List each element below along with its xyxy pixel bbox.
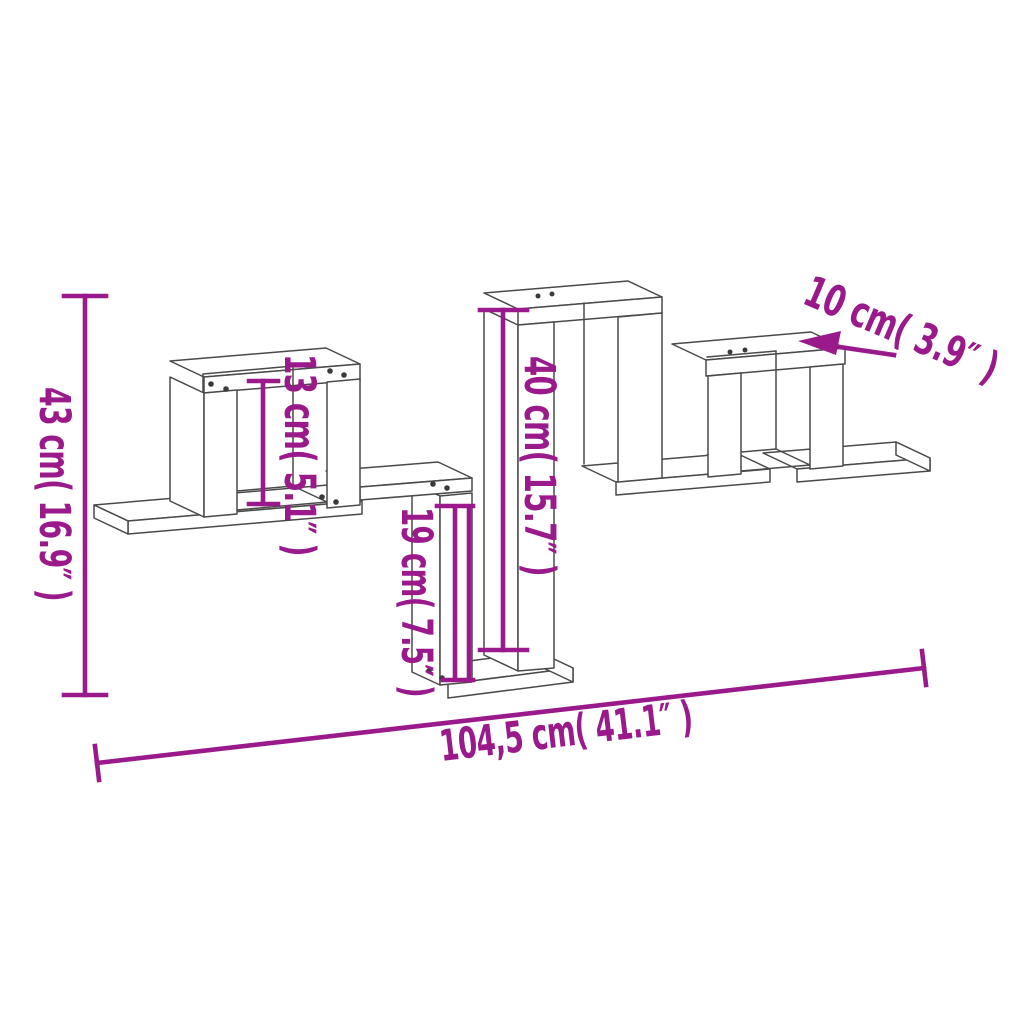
dimension-diagram: 43 cm( 16.9″ ) 13 cm( 5.1″ ) 40 cm( 15.7…: [0, 0, 1024, 1024]
cube-right-panel: [327, 379, 360, 508]
dim-cube-height-label: 13 cm( 5.1″ ): [274, 354, 324, 556]
bridge-left-panel: [708, 373, 741, 477]
bridge-right-panel: [810, 364, 843, 469]
dim-tower-height-label: 40 cm( 15.7″ ): [514, 356, 564, 576]
dim-total-height-label: 43 cm( 16.9″ ): [29, 387, 79, 601]
cube-left-panel: [170, 377, 237, 517]
dim-drop-height-label: 19 cm( 7.5″ ): [391, 507, 441, 697]
shelf-diagram-canvas: 43 cm( 16.9″ ) 13 cm( 5.1″ ) 40 cm( 15.7…: [0, 0, 1024, 1024]
right-shelf-board: [763, 442, 930, 482]
dim-total-width-label: 104,5 cm( 41.1″ ): [437, 692, 695, 772]
mid-shelf-board-right: [582, 453, 770, 495]
dim-cube-height-line: [249, 381, 278, 504]
tower-right-panel: [618, 313, 662, 482]
shelf-line-art: [94, 281, 930, 698]
